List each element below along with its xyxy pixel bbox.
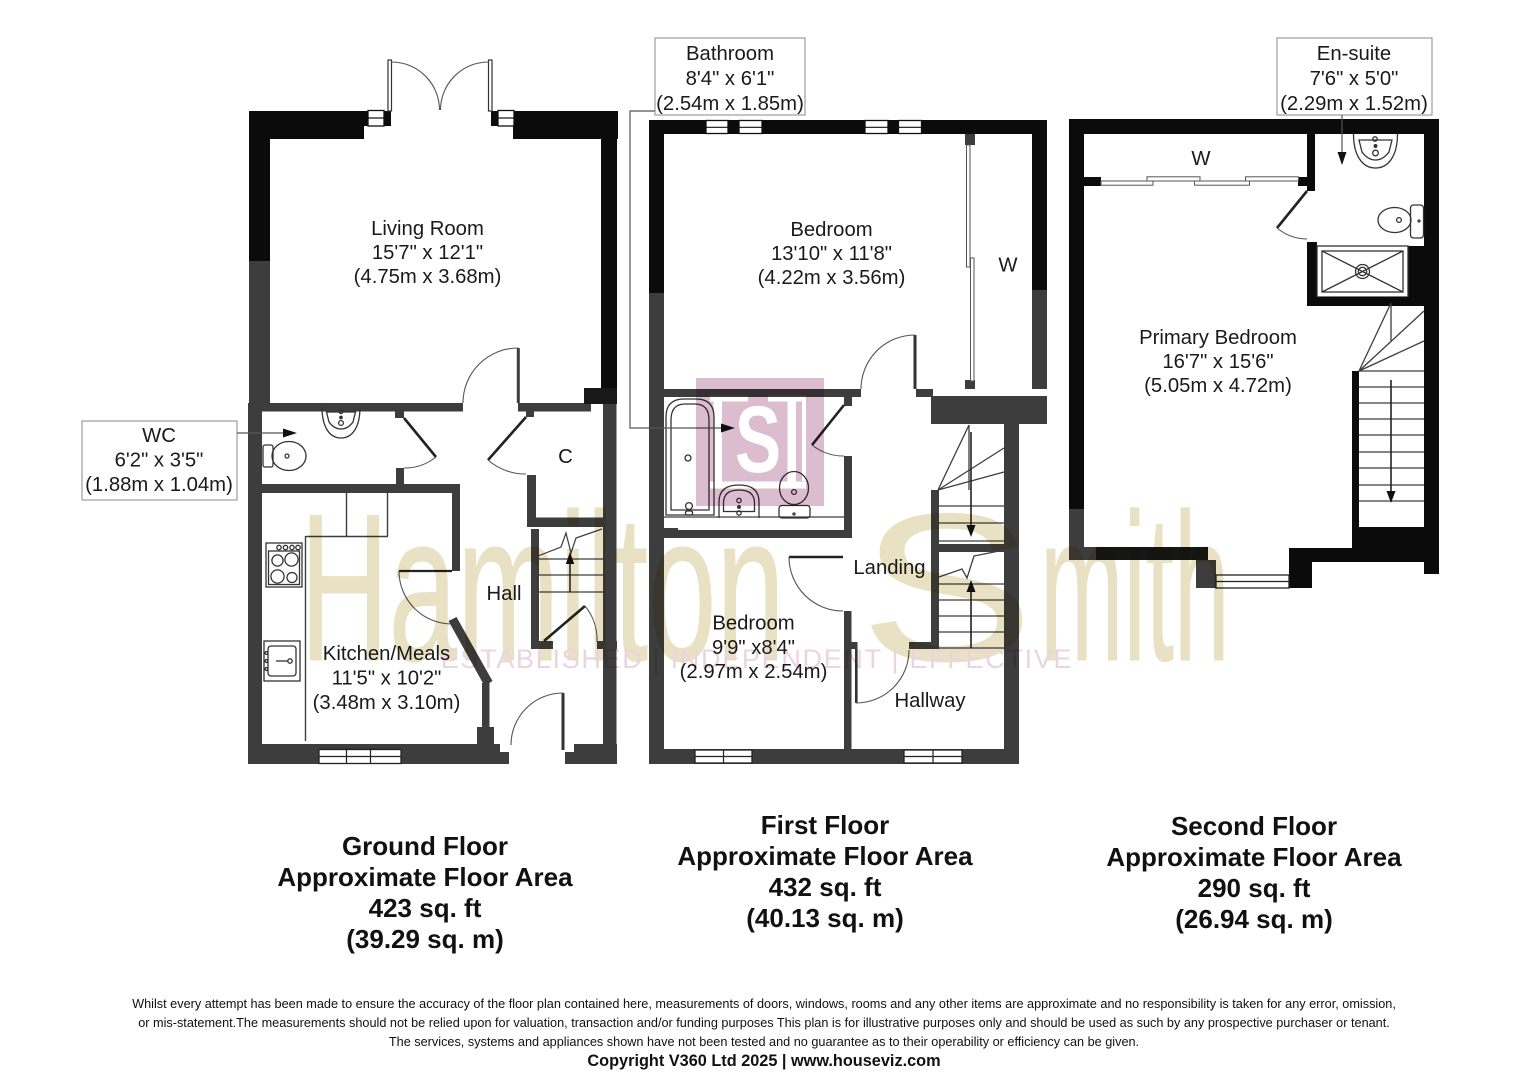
svg-text:ESTABLISHED | INDEPENDENT | EF: ESTABLISHED | INDEPENDENT | EFFECTIVE [441, 644, 1074, 674]
